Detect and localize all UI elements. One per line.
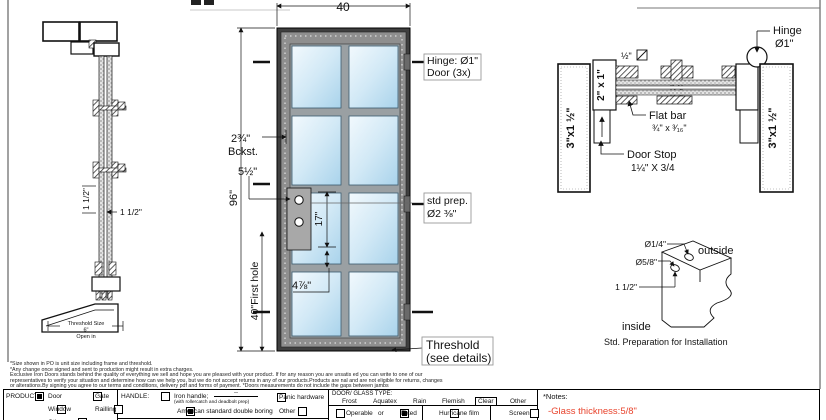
notes-cell: *Notes: -Glass thickness:5/8" xyxy=(537,390,819,420)
fixed-label: Fixed xyxy=(401,410,417,417)
handle-cell: HANDLE: Iron handle; -- (with rollercatc… xyxy=(117,390,329,420)
plan-hinge-label: Hinge xyxy=(773,25,802,37)
glass-subdivider-2 xyxy=(490,405,491,420)
checkbox-operable[interactable] xyxy=(336,409,345,418)
glass-type-rain[interactable]: Rain xyxy=(413,398,426,405)
detail-outside-label: outside xyxy=(698,245,733,257)
checkbox-door[interactable] xyxy=(35,392,44,401)
dim-1half-horizontal: 1 1/2" xyxy=(120,207,142,217)
handle-option-other: Other xyxy=(279,408,295,415)
threshold-callout-line1: Threshold xyxy=(426,338,479,352)
tube-size: 2" x 1" xyxy=(596,69,607,101)
glass-row-divider xyxy=(328,405,537,406)
first-hole-dim: 40"First hole xyxy=(249,262,261,321)
glass-half-dim: ½" xyxy=(621,51,632,61)
glass-type-label: DOOR/ GLASS TYPE: xyxy=(332,391,392,397)
product-cell: PRODUCT: Door Gate Window Railling Other xyxy=(4,390,118,420)
door-width-dim: 40 xyxy=(336,0,350,14)
detail-dia-fiveeighths: Ø5/8" xyxy=(636,257,657,267)
glass-type-frost[interactable]: Frost xyxy=(342,398,357,405)
hinge-callout-line2: Door (3x) xyxy=(427,67,471,79)
screen-label: Screen xyxy=(509,410,530,417)
dim-4-7-8: 4⅞" xyxy=(292,280,311,292)
product-option-gate: Gate xyxy=(95,393,109,400)
glass-subdivider-1 xyxy=(422,405,423,420)
notes-label: *Notes: xyxy=(543,392,568,401)
std-prep-line1: std prep. xyxy=(427,195,468,207)
iron-handle-blank[interactable]: -- xyxy=(214,390,258,397)
operable-label: Operable xyxy=(346,410,373,417)
detail-dia-quarter: Ø1/4" xyxy=(645,239,666,249)
handle-option-american: American standard double boring xyxy=(177,408,273,415)
door-spec-sheet: 1 1/2" 1 1/2" Threshold Size 6" Open in xyxy=(0,0,826,420)
checkbox-iron-handle[interactable] xyxy=(161,392,170,401)
backset-dim: 2¾" xyxy=(231,133,250,145)
product-option-door: Door xyxy=(48,393,62,400)
std-prep-line2: Ø2 ⅜" xyxy=(427,208,457,220)
order-form: PRODUCT: Door Gate Window Railling Other… xyxy=(3,389,820,420)
dim-1half-vertical: 1 1/2" xyxy=(81,188,91,210)
handle-row-divider xyxy=(117,418,328,419)
or-label: or xyxy=(378,410,384,417)
detail-dim-1half: 1 1/2" xyxy=(615,282,637,292)
door-height-dim: 96" xyxy=(228,190,240,206)
lock-bore-hole-bottom xyxy=(295,218,303,226)
glass-type-aquatex[interactable]: Aquatex xyxy=(373,398,397,405)
handle-option-iron: Iron handle; xyxy=(174,393,208,400)
door-stop-size: 1¼" X 3/4 xyxy=(631,162,675,174)
hinge-callout-line1: Hinge: Ø1" xyxy=(427,55,478,67)
product-option-railling: Railling xyxy=(95,406,116,413)
threshold-open-label: Open in xyxy=(76,334,95,340)
fine-print: *Size shown in PO is unit size including… xyxy=(10,362,630,390)
hurricane-film-label: Hurricane film xyxy=(439,410,479,417)
jamb-right-size: 3"x1 ½" xyxy=(767,107,779,148)
threshold-size-label: Threshold Size xyxy=(68,321,105,327)
flat-bar-size: ¾" x ³⁄₁₆" xyxy=(652,123,687,133)
plan-hinge-size: Ø1" xyxy=(775,38,794,50)
glass-type-flemish[interactable]: Flemish xyxy=(442,398,465,405)
detail-hole-quarter xyxy=(684,252,695,261)
offset-5half-dim: 5½" xyxy=(238,166,257,178)
handle-option-panic: Panic hardware xyxy=(279,394,324,401)
product-option-window: Window xyxy=(48,406,71,413)
checkbox-handle-other[interactable] xyxy=(298,407,307,416)
dim-17: 17" xyxy=(314,211,325,226)
glass-type-other[interactable]: Other xyxy=(510,398,526,405)
threshold-profile xyxy=(42,304,118,332)
glass-thickness-note: -Glass thickness:5/8" xyxy=(548,406,637,417)
detail-inside-label: inside xyxy=(622,321,651,333)
left-frame-section-drawing xyxy=(42,22,126,332)
backset-label: Bckst. xyxy=(228,146,258,158)
technical-drawing: 1 1/2" 1 1/2" Threshold Size 6" Open in xyxy=(0,0,826,389)
glass-type-cell: DOOR/ GLASS TYPE: Frost Aquatex Rain Fle… xyxy=(328,390,538,420)
detail-hole-fiveeighths xyxy=(670,263,681,272)
iron-handle-subnote: (with rollercatch and deadbolt prep) xyxy=(174,400,249,405)
lock-bore-hole-top xyxy=(295,196,303,204)
detail-caption: Std. Preparation for Installation xyxy=(604,337,728,347)
jamb-left-size: 3"x1 ½" xyxy=(565,107,577,148)
threshold-size-value: 6" xyxy=(83,328,88,334)
page-borders xyxy=(8,0,820,389)
flat-bar-label: Flat bar xyxy=(649,110,687,122)
handle-label: HANDLE: xyxy=(121,393,149,400)
door-stop-label: Door Stop xyxy=(627,149,677,161)
